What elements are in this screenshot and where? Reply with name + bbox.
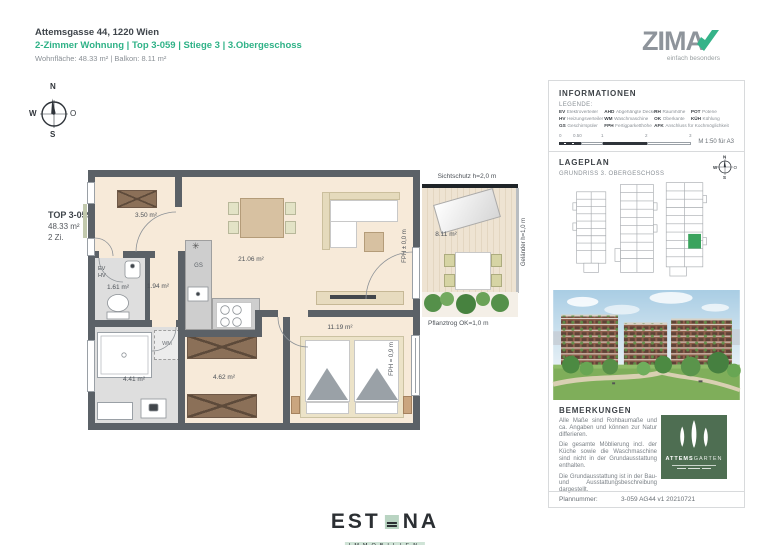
legend-item: KÜHKühlung — [691, 117, 738, 124]
room-label-living: 21.06 m² — [219, 256, 283, 263]
svg-text:O: O — [734, 165, 738, 170]
svg-text:N: N — [723, 155, 726, 160]
bemerkung-paragraph: Die gesamte Möblierung incl. der Küche s… — [559, 442, 657, 469]
legend-item: OKOberkante — [654, 117, 691, 124]
legend-item: AFKAnschluss für Kochmöglichkeit — [654, 124, 737, 131]
estona-left: EST — [331, 510, 381, 534]
legend-item: FPHFertigparketthöhe — [604, 124, 654, 131]
room-label-corridor: 1.94 m² — [136, 283, 180, 290]
site-highlight-unit — [688, 234, 701, 249]
gelaender-label: Geländer h=1,0 m — [521, 212, 527, 272]
pflanztrog-label: Pflanztrog OK=1,0 m — [428, 320, 523, 327]
legend-item: POTPoterie — [691, 110, 738, 117]
lageplan-title: LAGEPLAN — [559, 158, 609, 167]
attems-brand-light: GARTEN — [694, 456, 723, 462]
legend-item: GSGeschirrspüler — [559, 124, 604, 131]
legend-item: EVElektroverteiler — [559, 110, 604, 117]
svg-text:W: W — [713, 165, 718, 170]
plannummer-label: Plannummer: — [559, 496, 598, 503]
legend-grid: EVElektroverteiler AHDAbgehängte Decke R… — [559, 110, 742, 131]
plannummer-value: 3-059 AG44 v1 20210721 — [621, 496, 695, 503]
logo-divider — [672, 465, 716, 466]
gs-label: GS — [185, 263, 212, 269]
room-label-wc: 1.61 m² — [96, 284, 140, 291]
estona-right: NA — [403, 510, 439, 534]
attemsgarten-trees-icon — [674, 419, 714, 449]
room-label-balcony: 8.11 m² — [424, 231, 468, 238]
site-plan — [556, 179, 738, 287]
scale-note: M 1:50 für A3 — [672, 139, 734, 145]
plan-detail-overlay — [85, 168, 535, 438]
logo-tagline-marks — [661, 468, 727, 469]
room-label-entry: 3.50 m² — [118, 212, 174, 219]
sidebar: INFORMATIONEN LEGENDE: EVElektroverteile… — [548, 80, 745, 508]
attemsgarten-logo: ATTEMSGARTEN — [661, 415, 727, 479]
fph-door-label: FPH ± 0,0 m — [402, 216, 408, 276]
estona-logo: EST NA IMMOBILIEN — [331, 510, 439, 545]
ev-label: EV — [98, 266, 106, 273]
informationen-title: INFORMATIONEN — [559, 89, 636, 98]
bemerkung-paragraph: Alle Maße sind Rohbaumaße und ca. Angabe… — [559, 418, 657, 438]
attems-brand-bold: ATTEMS — [665, 456, 693, 462]
room-label-bath: 4.41 m² — [110, 376, 158, 383]
legend-item: WMWaschmaschine — [604, 117, 654, 124]
sichtschutz-label: Sichtschutz h=2,0 m — [412, 173, 522, 180]
hv-label: HV — [98, 273, 106, 280]
divider — [549, 151, 744, 152]
legend-item: HVHeizungsverteiler — [559, 117, 604, 124]
project-photo — [552, 290, 741, 400]
room-label-hall: 4.62 m² — [198, 374, 250, 381]
divider — [549, 491, 744, 492]
mini-compass-icon: N S W O — [713, 154, 737, 180]
bemerkungen-title: BEMERKUNGEN — [559, 406, 631, 415]
legende-label: LEGENDE: — [559, 102, 593, 108]
bemerkungen-text: Alle Maße sind Rohbaumaße und ca. Angabe… — [559, 418, 657, 498]
fph-window-label: FPH = 0,9 m — [389, 329, 395, 389]
estona-square-icon — [385, 515, 399, 529]
room-label-bedroom: 11.19 m² — [310, 324, 370, 331]
ev-hv-label: EV HV — [98, 266, 106, 279]
planter-trees — [424, 292, 509, 314]
lageplan-subtitle: GRUNDRISS 3. OBERGESCHOSS — [559, 171, 664, 177]
legend-item: RHRaumhöhe — [654, 110, 691, 117]
legend-item: AHDAbgehängte Decke — [604, 110, 654, 117]
plan-sheet: Attemsgasse 44, 1220 Wien 2-Zimmer Wohnu… — [0, 0, 770, 545]
